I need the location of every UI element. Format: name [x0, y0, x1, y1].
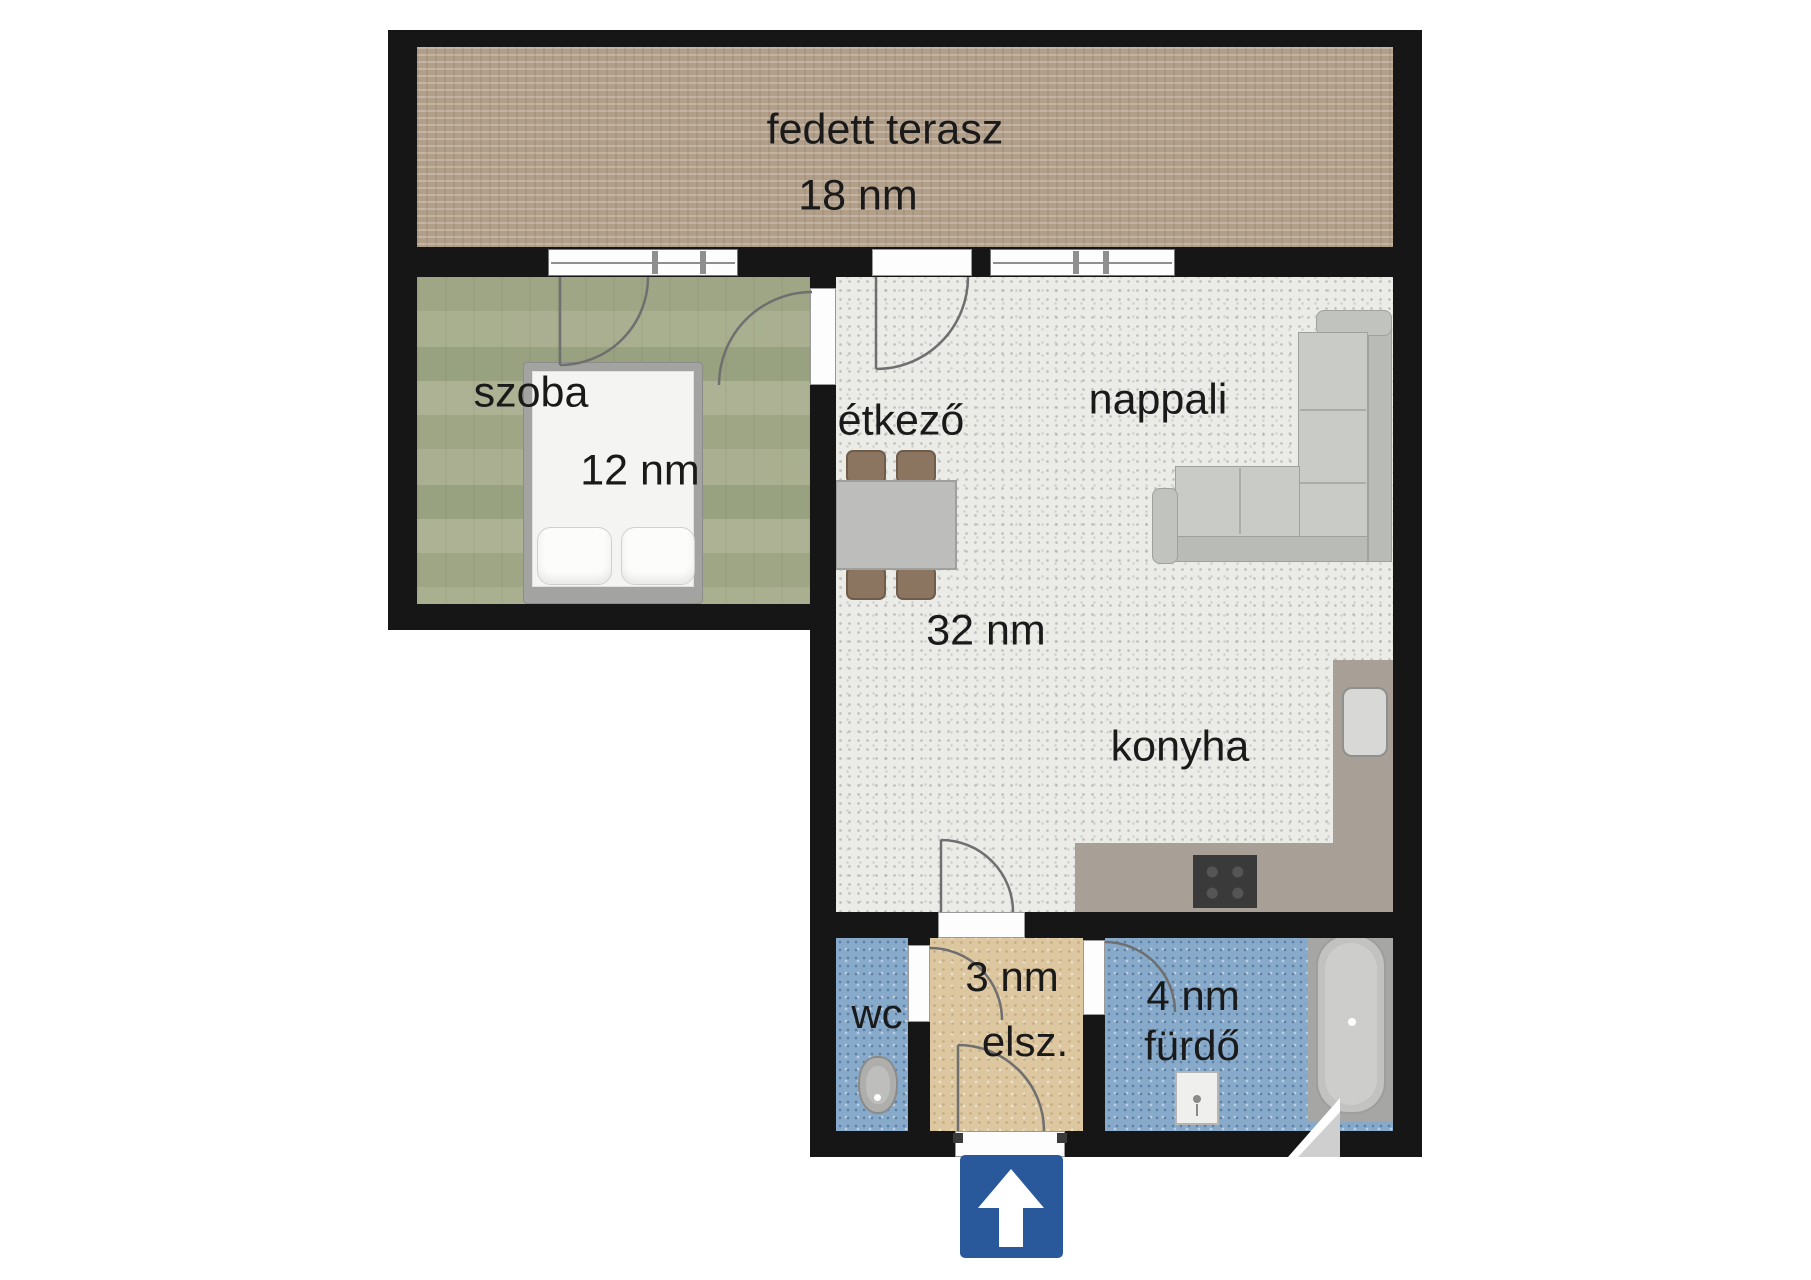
entrance-arrow — [960, 1155, 1063, 1258]
sofa-cushion-divider — [1300, 409, 1366, 411]
hall-label: elsz. — [982, 1018, 1068, 1066]
wc-door-frame — [908, 945, 930, 1022]
dining-chair — [846, 566, 886, 600]
pillow — [537, 527, 612, 585]
kitchen-sink — [1342, 687, 1388, 757]
pillow — [621, 527, 695, 585]
sofa-arm-left — [1152, 488, 1178, 564]
window-mullion — [652, 251, 658, 274]
dining-terrace-door-frame — [872, 249, 972, 276]
entrance-door-frame — [955, 1131, 1065, 1157]
terrace-area: 18 nm — [798, 172, 918, 221]
wall-bottom — [810, 1131, 1422, 1157]
kitchen-label: konyha — [1111, 723, 1250, 772]
living-terrace-window — [990, 249, 1175, 276]
bathroom-label: fürdő — [1144, 1022, 1240, 1070]
wall-mid-vertical — [810, 277, 836, 1157]
bedroom-area: 12 nm — [580, 447, 700, 496]
bathroom-area: 4 nm — [1146, 972, 1239, 1020]
dining-label: étkező — [838, 397, 965, 446]
dining-table — [835, 480, 957, 570]
terrace-label: fedett terasz — [767, 106, 1004, 155]
window-mullion — [1103, 251, 1109, 274]
dining-chair — [896, 566, 936, 600]
living-area: 32 nm — [926, 607, 1046, 656]
wall-right — [1393, 30, 1422, 1157]
sofa-cushion-divider — [1239, 468, 1241, 534]
bathtub-drain — [1348, 1018, 1356, 1026]
entrance-door-hinge — [953, 1133, 963, 1143]
floor-plan: fedett terasz 18 nm szoba 12 nm étkező n… — [0, 0, 1811, 1280]
living-label: nappali — [1089, 376, 1228, 425]
sofa-back-bottom — [1175, 536, 1368, 562]
entrance-door-hinge — [1057, 1133, 1067, 1143]
bedroom-dining-door-frame — [810, 288, 836, 385]
window-mullion — [1073, 251, 1079, 274]
wc-label: wc — [851, 990, 902, 1038]
bathroom-sink-drain — [1196, 1104, 1198, 1116]
wall-top — [388, 30, 1422, 47]
bathroom-door-frame — [1083, 940, 1105, 1015]
window-mullion — [700, 251, 706, 274]
kitchen-hall-door-frame — [938, 912, 1025, 938]
bedroom-terrace-window — [548, 249, 738, 276]
dining-chair — [846, 450, 886, 484]
toilet-flush-dot — [874, 1094, 881, 1101]
wall-bedroom-bottom — [388, 604, 836, 630]
dining-chair — [896, 450, 936, 484]
cooktop — [1193, 855, 1257, 908]
entrance-arrow-icon — [960, 1155, 1063, 1258]
wall-kitchen-bottom — [810, 912, 1422, 938]
wall-left — [388, 30, 417, 630]
sofa-cushion-divider — [1300, 482, 1366, 484]
bedroom-label: szoba — [474, 369, 589, 418]
sofa-seat-vertical — [1298, 332, 1368, 562]
sofa-back-right — [1368, 316, 1392, 562]
bathroom-sink-tap — [1193, 1095, 1201, 1103]
hall-area: 3 nm — [965, 953, 1058, 1001]
